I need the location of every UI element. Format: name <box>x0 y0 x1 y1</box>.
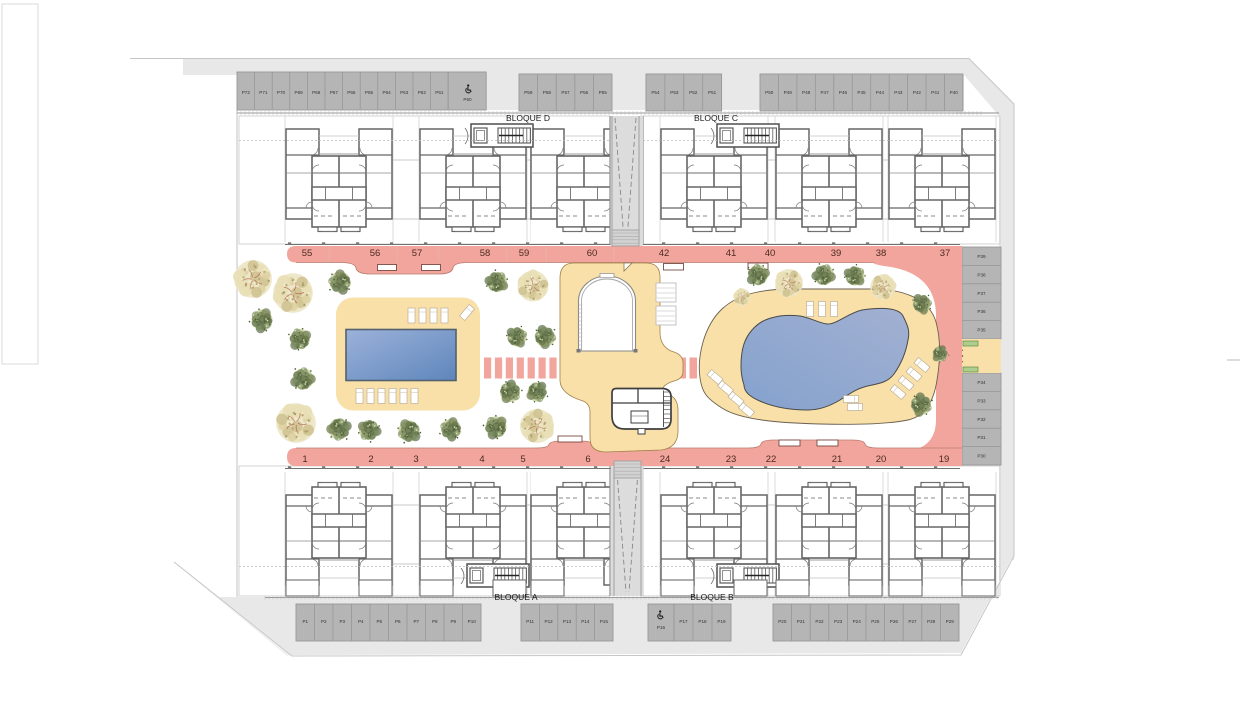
svg-text:42: 42 <box>659 248 670 259</box>
svg-text:P42: P42 <box>913 90 922 95</box>
svg-text:21: 21 <box>832 454 843 465</box>
svg-text:P3: P3 <box>339 619 345 624</box>
svg-text:P24: P24 <box>853 619 862 624</box>
svg-text:P48: P48 <box>802 90 811 95</box>
svg-text:P36: P36 <box>977 309 986 314</box>
svg-text:P35: P35 <box>977 328 986 333</box>
svg-text:4: 4 <box>479 454 484 465</box>
svg-text:P21: P21 <box>797 619 806 624</box>
svg-text:55: 55 <box>302 248 313 259</box>
svg-text:P23: P23 <box>834 619 843 624</box>
svg-text:P30: P30 <box>977 454 986 459</box>
svg-text:22: 22 <box>766 454 777 465</box>
svg-text:P58: P58 <box>543 90 552 95</box>
svg-text:41: 41 <box>726 248 737 259</box>
svg-text:2: 2 <box>368 454 373 465</box>
svg-text:P60: P60 <box>463 97 472 102</box>
svg-text:BLOQUE A: BLOQUE A <box>495 592 538 602</box>
svg-text:P47: P47 <box>820 90 829 95</box>
svg-text:37: 37 <box>940 248 951 259</box>
svg-text:20: 20 <box>876 454 887 465</box>
svg-text:BLOQUE D: BLOQUE D <box>506 113 550 123</box>
svg-text:P33: P33 <box>977 398 986 403</box>
svg-text:P18: P18 <box>698 619 707 624</box>
svg-text:3: 3 <box>413 454 418 465</box>
svg-text:59: 59 <box>519 248 530 259</box>
svg-text:BLOQUE C: BLOQUE C <box>694 113 738 123</box>
svg-text:P61: P61 <box>435 90 444 95</box>
svg-text:P49: P49 <box>784 90 793 95</box>
svg-text:P59: P59 <box>524 90 533 95</box>
svg-text:58: 58 <box>480 248 491 259</box>
svg-text:P62: P62 <box>418 90 427 95</box>
svg-text:19: 19 <box>939 454 950 465</box>
svg-text:P72: P72 <box>242 90 251 95</box>
svg-text:P64: P64 <box>383 90 392 95</box>
svg-text:P2: P2 <box>321 619 327 624</box>
svg-text:P44: P44 <box>876 90 885 95</box>
svg-text:6: 6 <box>585 454 590 465</box>
svg-text:24: 24 <box>660 454 671 465</box>
svg-text:P63: P63 <box>400 90 409 95</box>
svg-text:P20: P20 <box>778 619 787 624</box>
svg-text:P5: P5 <box>376 619 382 624</box>
svg-text:5: 5 <box>520 454 525 465</box>
svg-text:P45: P45 <box>857 90 866 95</box>
svg-text:P12: P12 <box>545 619 554 624</box>
svg-text:P10: P10 <box>468 619 477 624</box>
svg-text:P40: P40 <box>950 90 959 95</box>
svg-text:P25: P25 <box>871 619 880 624</box>
svg-text:P37: P37 <box>977 291 986 296</box>
svg-text:23: 23 <box>726 454 737 465</box>
svg-text:P7: P7 <box>413 619 419 624</box>
svg-text:P6: P6 <box>395 619 401 624</box>
svg-text:P11: P11 <box>526 619 534 624</box>
svg-text:P28: P28 <box>927 619 936 624</box>
svg-text:P46: P46 <box>839 90 848 95</box>
svg-text:P55: P55 <box>599 90 608 95</box>
svg-text:P67: P67 <box>330 90 339 95</box>
svg-text:P38: P38 <box>977 272 986 277</box>
svg-text:1: 1 <box>302 454 307 465</box>
svg-text:P68: P68 <box>312 90 321 95</box>
svg-text:BLOQUE B: BLOQUE B <box>690 592 734 602</box>
svg-text:P39: P39 <box>977 254 986 259</box>
svg-text:57: 57 <box>412 248 423 259</box>
svg-text:56: 56 <box>370 248 381 259</box>
svg-text:P27: P27 <box>908 619 917 624</box>
svg-text:P53: P53 <box>670 90 679 95</box>
svg-text:60: 60 <box>587 248 598 259</box>
svg-text:P29: P29 <box>946 619 955 624</box>
svg-text:P56: P56 <box>580 90 589 95</box>
svg-text:P51: P51 <box>708 90 717 95</box>
svg-text:P31: P31 <box>977 435 986 440</box>
svg-text:P43: P43 <box>894 90 903 95</box>
svg-text:39: 39 <box>831 248 842 259</box>
svg-text:P69: P69 <box>295 90 304 95</box>
svg-text:P17: P17 <box>679 619 688 624</box>
svg-text:P34: P34 <box>977 380 986 385</box>
svg-text:P13: P13 <box>563 619 572 624</box>
svg-text:P9: P9 <box>450 619 456 624</box>
svg-text:P65: P65 <box>365 90 374 95</box>
svg-text:P71: P71 <box>259 90 268 95</box>
svg-text:P1: P1 <box>302 619 308 624</box>
svg-text:P66: P66 <box>347 90 356 95</box>
svg-text:P15: P15 <box>600 619 609 624</box>
svg-text:P57: P57 <box>561 90 570 95</box>
svg-text:P41: P41 <box>931 90 940 95</box>
svg-text:P26: P26 <box>890 619 899 624</box>
svg-text:P16: P16 <box>657 625 666 630</box>
svg-text:P32: P32 <box>977 417 986 422</box>
svg-text:38: 38 <box>876 248 887 259</box>
svg-text:P22: P22 <box>815 619 824 624</box>
svg-text:P14: P14 <box>581 619 590 624</box>
svg-text:P70: P70 <box>277 90 286 95</box>
svg-text:P8: P8 <box>432 619 438 624</box>
svg-text:P50: P50 <box>765 90 774 95</box>
svg-text:P52: P52 <box>689 90 698 95</box>
svg-text:P4: P4 <box>358 619 364 624</box>
svg-text:40: 40 <box>765 248 776 259</box>
svg-text:P19: P19 <box>717 619 726 624</box>
svg-text:P54: P54 <box>651 90 660 95</box>
